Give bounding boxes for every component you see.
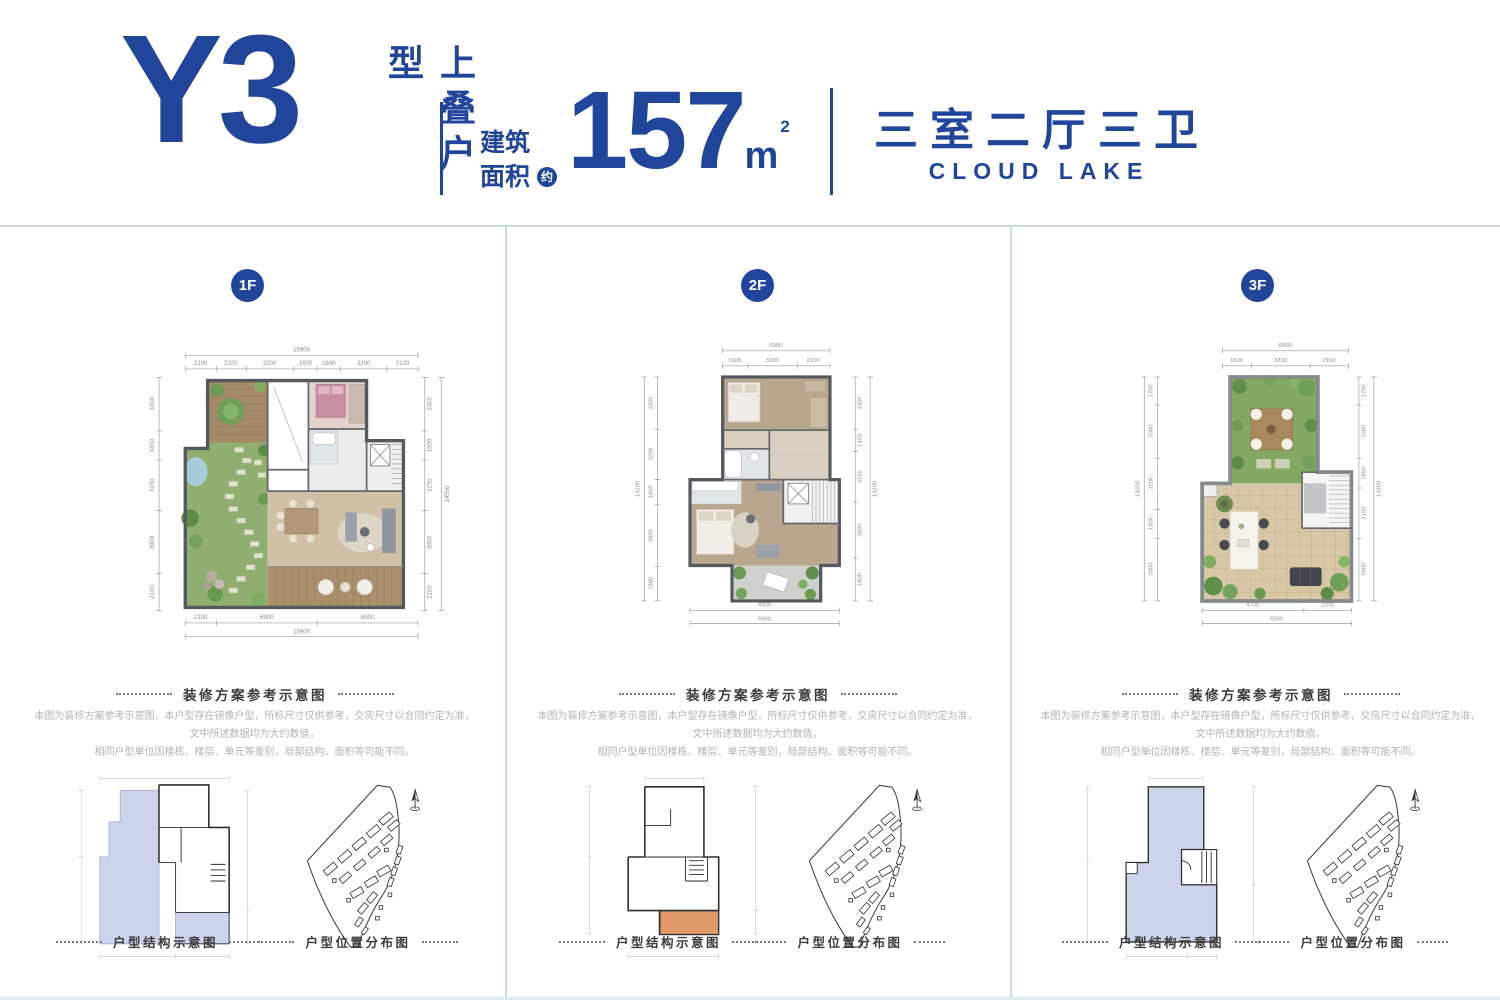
svg-text:4700: 4700 xyxy=(1246,603,1260,609)
corner-unit xyxy=(1126,863,1137,874)
dotted-leader xyxy=(258,941,294,943)
svg-text:3300: 3300 xyxy=(1361,424,1367,438)
svg-text:6900: 6900 xyxy=(758,617,772,623)
north-arrow-icon xyxy=(913,789,922,811)
location-caption-2f: 户型位置分布图 xyxy=(755,932,945,951)
floor-badge-3f: 3F xyxy=(1241,269,1274,302)
dotted-leader xyxy=(1122,693,1178,695)
rooms-1f xyxy=(268,381,404,608)
svg-text:6900: 6900 xyxy=(1279,343,1293,349)
area-value: 157m2 xyxy=(567,76,788,186)
floor-badge-1f: 1F xyxy=(231,269,264,302)
header-divider-1 xyxy=(440,102,443,195)
svg-text:2100: 2100 xyxy=(149,585,156,599)
location-caption-1f: 户型位置分布图 xyxy=(258,932,458,951)
plan-caption-1f: 装修方案参考示意图 xyxy=(55,684,455,704)
svg-text:1600: 1600 xyxy=(299,360,313,367)
svg-text:14200: 14200 xyxy=(636,480,642,497)
svg-text:3200: 3200 xyxy=(649,447,655,461)
svg-text:1600: 1600 xyxy=(322,360,336,367)
svg-text:3150: 3150 xyxy=(427,478,434,492)
svg-text:2100: 2100 xyxy=(1323,358,1337,364)
svg-text:3300: 3300 xyxy=(1149,424,1155,438)
svg-text:1450: 1450 xyxy=(858,433,864,447)
svg-text:3150: 3150 xyxy=(1361,506,1367,520)
dotted-leader xyxy=(559,941,605,943)
rooms-2f xyxy=(690,377,839,601)
svg-text:3300: 3300 xyxy=(149,396,156,410)
unit-tag-vertical: 上叠户型 xyxy=(377,44,481,214)
svg-text:2100: 2100 xyxy=(396,360,410,367)
dotted-leader xyxy=(338,693,394,695)
location-map-3f xyxy=(1300,780,1435,955)
garden-area-1f xyxy=(181,381,269,608)
dotted-leader xyxy=(841,693,897,695)
area-number: 157 xyxy=(567,69,745,192)
disclaimer-3f: 本图为装修方案参考示意图，本户型存在镜像户型，所标尺寸仅供参考，交房尺寸以合同约… xyxy=(1038,708,1483,762)
svg-text:13950: 13950 xyxy=(1136,480,1142,497)
disclaimer-2f: 本图为装修方案参考示意图，本户型存在镜像户型，所标尺寸仅供参考，交房尺寸以合同约… xyxy=(535,708,980,762)
svg-text:14500: 14500 xyxy=(444,485,451,503)
area-label-line1: 建筑 xyxy=(480,127,557,161)
room-layout-title: 三室二厅三卫 xyxy=(874,94,1210,158)
structure-caption-1f: 户型结构示意图 xyxy=(38,932,293,951)
svg-text:2100: 2100 xyxy=(194,360,208,367)
svg-text:6900: 6900 xyxy=(1270,617,1284,623)
svg-text:3900: 3900 xyxy=(1361,562,1367,576)
svg-text:13950: 13950 xyxy=(1376,480,1382,497)
svg-text:2200: 2200 xyxy=(1321,603,1335,609)
location-map-1f xyxy=(300,780,435,955)
approx-circle-badge: 约 xyxy=(537,167,557,187)
dotted-leader xyxy=(422,941,458,943)
svg-text:6900: 6900 xyxy=(758,603,772,609)
dotted-leader xyxy=(755,941,786,943)
svg-text:3200: 3200 xyxy=(766,358,780,364)
area-unit: m xyxy=(745,135,779,177)
svg-text:6900: 6900 xyxy=(769,343,783,349)
svg-text:6900: 6900 xyxy=(361,614,375,621)
dotted-leader xyxy=(619,693,675,695)
floorplan-1f: 15900 2100 2100 3200 1600 1600 3200 2100… xyxy=(122,334,457,654)
svg-text:1750: 1750 xyxy=(1361,384,1367,398)
svg-text:2100: 2100 xyxy=(807,358,821,364)
area-label-line2: 面积 xyxy=(480,161,530,195)
svg-text:1600: 1600 xyxy=(1230,358,1244,364)
svg-text:3900: 3900 xyxy=(649,528,655,542)
svg-text:1800: 1800 xyxy=(649,576,655,590)
svg-text:3200: 3200 xyxy=(357,360,371,367)
svg-text:3200: 3200 xyxy=(1149,476,1155,490)
column-divider-2 xyxy=(1010,226,1012,1000)
svg-text:3300: 3300 xyxy=(427,396,434,410)
svg-text:2100: 2100 xyxy=(427,585,434,599)
dotted-leader xyxy=(1258,941,1289,943)
svg-text:3200: 3200 xyxy=(1274,358,1288,364)
svg-text:1800: 1800 xyxy=(1149,516,1155,530)
dotted-leader xyxy=(1417,941,1448,943)
svg-text:1800: 1800 xyxy=(858,572,864,586)
svg-text:15900: 15900 xyxy=(293,629,311,636)
svg-text:2100: 2100 xyxy=(194,614,208,621)
svg-text:3900: 3900 xyxy=(149,535,156,549)
floor-badge-2f: 2F xyxy=(741,269,774,302)
dotted-leader xyxy=(914,941,945,943)
svg-text:3150: 3150 xyxy=(149,478,156,492)
svg-text:2100: 2100 xyxy=(224,360,238,367)
dotted-leader xyxy=(116,693,172,695)
svg-text:3200: 3200 xyxy=(263,360,277,367)
north-arrow-icon xyxy=(411,789,420,811)
location-caption-3f: 户型位置分布图 xyxy=(1258,932,1448,951)
location-map-2f xyxy=(802,780,937,955)
svg-text:3600: 3600 xyxy=(858,523,864,537)
dotted-leader xyxy=(56,941,102,943)
header-divider-2 xyxy=(830,88,833,195)
svg-text:3900: 3900 xyxy=(1149,562,1155,576)
brand-subtitle: CLOUD LAKE xyxy=(874,158,1204,185)
floorplan-2f: 6900 1600 3200 2100 3300 3200 1600 3900 … xyxy=(620,332,900,645)
roof-terrace-3f xyxy=(1202,472,1351,601)
dotted-leader xyxy=(1062,941,1108,943)
plan-caption-3f: 装修方案参考示意图 xyxy=(1061,684,1461,704)
header-rule xyxy=(0,225,1500,227)
svg-text:3300: 3300 xyxy=(858,396,864,410)
svg-text:1600: 1600 xyxy=(728,358,742,364)
floorplan-3f: 6900 1600 3200 2100 1750 3300 3200 1800 … xyxy=(1120,332,1400,645)
area-unit-superscript: 2 xyxy=(780,117,789,136)
garden-fill xyxy=(100,790,159,943)
disclaimer-1f: 本图为装修方案参考示意图，本户型存在镜像户型，所标尺寸仅供参考，交房尺寸以合同约… xyxy=(32,708,477,762)
svg-text:3150: 3150 xyxy=(858,470,864,484)
roof-garden-3f xyxy=(1230,375,1318,483)
dotted-leader xyxy=(1344,693,1400,695)
area-label: 建筑 面积 约 xyxy=(480,127,557,194)
svg-text:3900: 3900 xyxy=(427,535,434,549)
svg-text:3300: 3300 xyxy=(649,396,655,410)
svg-text:1600: 1600 xyxy=(649,485,655,499)
svg-text:1750: 1750 xyxy=(1149,384,1155,398)
unit-code: Y3 xyxy=(120,16,298,162)
balcony-fill xyxy=(660,911,719,935)
svg-text:15900: 15900 xyxy=(293,346,311,353)
plan-caption-2f: 装修方案参考示意图 xyxy=(558,684,958,704)
floorplan-brochure-page: Y3 上叠户型 建筑 面积 约 157m2 三室二厅三卫 CLOUD LAKE … xyxy=(0,0,1500,1000)
svg-text:1850: 1850 xyxy=(149,438,156,452)
svg-text:1800: 1800 xyxy=(427,438,434,452)
svg-text:6900: 6900 xyxy=(260,614,274,621)
svg-text:1850: 1850 xyxy=(1361,466,1367,480)
svg-text:14200: 14200 xyxy=(873,480,879,497)
north-arrow-icon xyxy=(1411,789,1420,811)
column-divider-1 xyxy=(505,226,507,1000)
